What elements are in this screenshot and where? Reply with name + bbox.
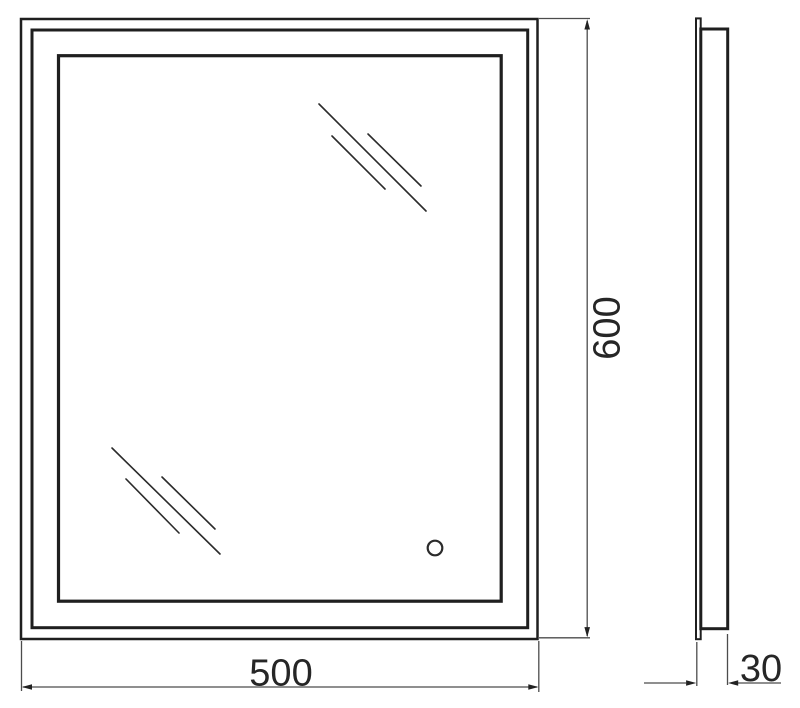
- svg-text:500: 500: [249, 652, 312, 694]
- svg-text:600: 600: [587, 296, 629, 359]
- svg-text:30: 30: [740, 648, 782, 690]
